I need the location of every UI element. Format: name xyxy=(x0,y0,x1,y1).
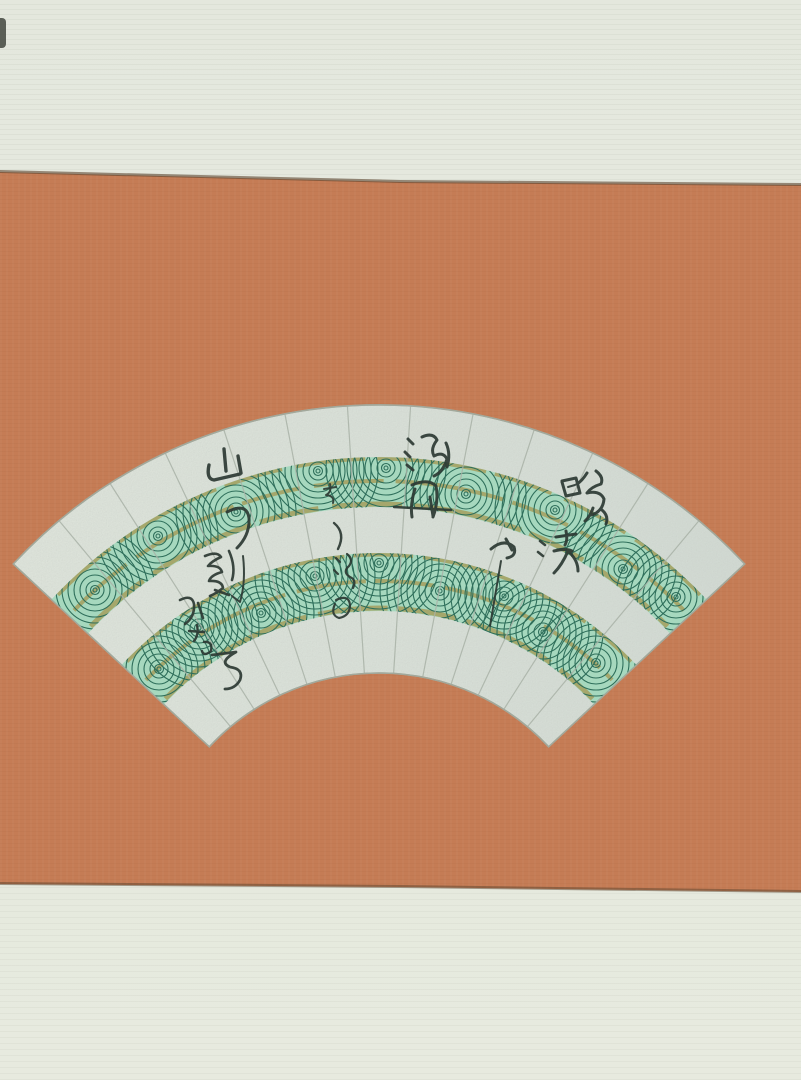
fan-painting-svg xyxy=(0,0,801,1080)
artwork-photo xyxy=(0,0,801,1080)
fan-painting xyxy=(0,380,801,770)
